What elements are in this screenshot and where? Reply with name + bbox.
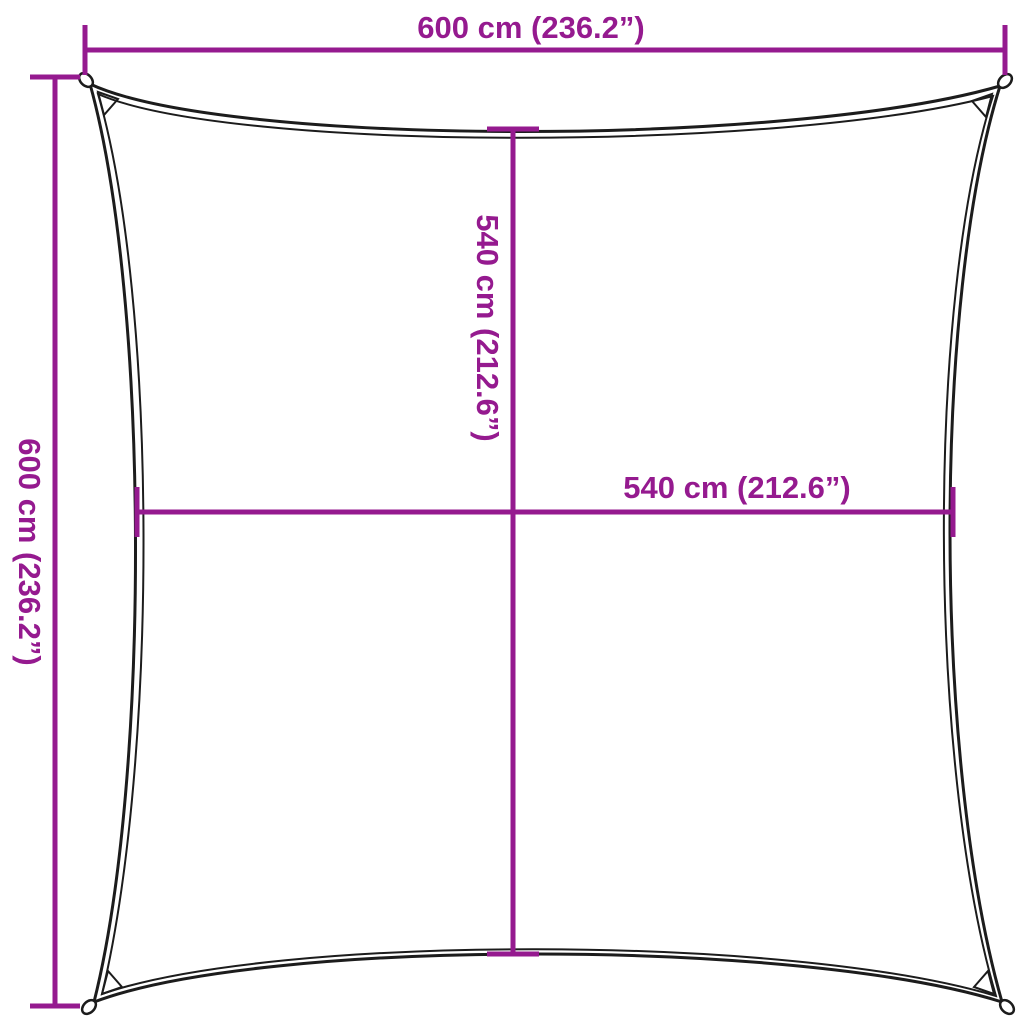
corner-patch-bottom-left xyxy=(102,971,122,994)
dimension-diagram: 600 cm (236.2”) 600 cm (236.2”) 540 cm (… xyxy=(0,0,1024,1024)
outer-width-label: 600 cm (236.2”) xyxy=(417,10,644,46)
inner-height-label: 540 cm (212.6”) xyxy=(469,214,505,441)
shade-sail-drawing xyxy=(0,0,1024,1024)
sail-outer-edge xyxy=(90,84,1002,1002)
sail-inner-seam xyxy=(98,94,996,996)
inner-width-label: 540 cm (212.6”) xyxy=(623,470,850,506)
outer-height-label: 600 cm (236.2”) xyxy=(11,438,47,665)
